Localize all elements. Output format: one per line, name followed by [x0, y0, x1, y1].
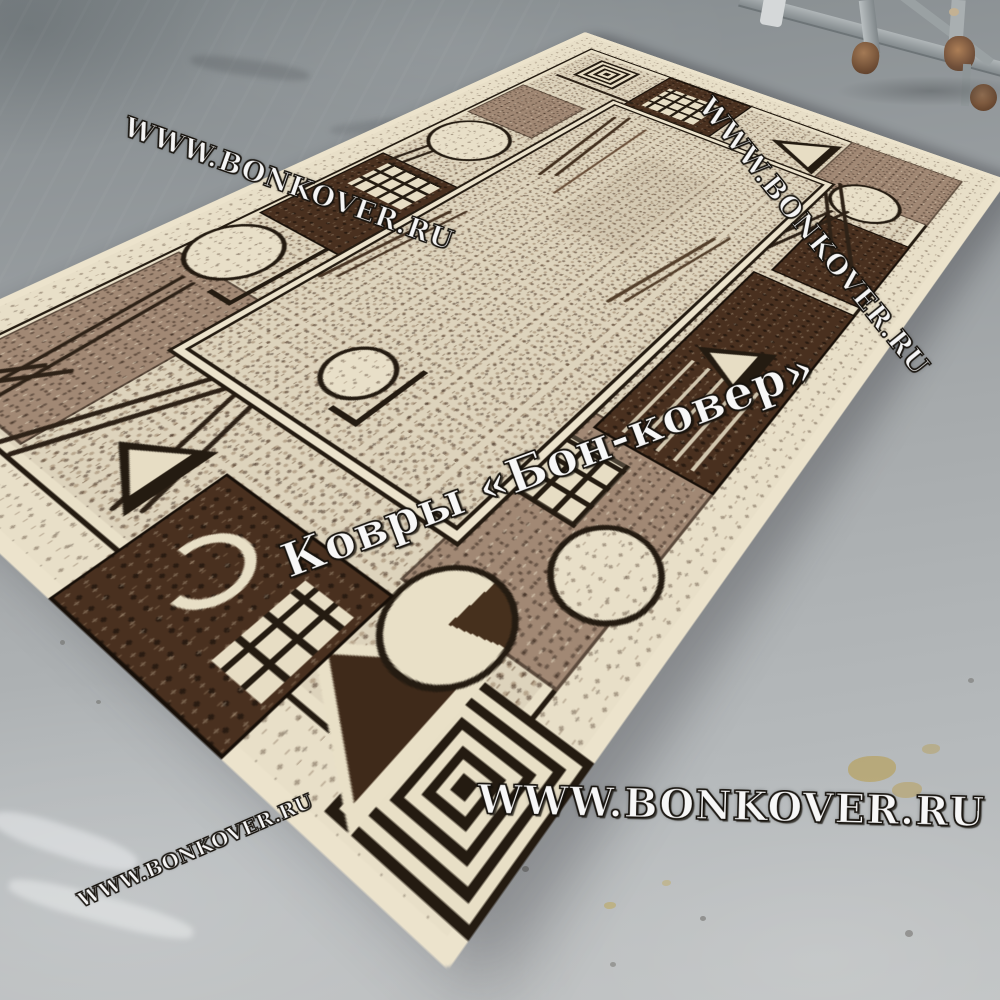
floor-stain-ochre: [604, 902, 616, 909]
floor-speck: [700, 916, 706, 921]
floor-stain-ochre: [662, 880, 671, 886]
floor-smudge: [189, 52, 310, 85]
floor-stain-ochre: [922, 744, 940, 754]
furniture-shadow: [836, 76, 1000, 106]
motif-hook: [328, 405, 361, 427]
floor-speck: [968, 678, 974, 683]
furniture-post: [759, 0, 786, 28]
paint-blob: [949, 8, 959, 16]
field-shade: [550, 155, 720, 256]
motif-circle: [300, 336, 416, 412]
floor-stain-ochre: [848, 756, 896, 782]
motif-open-ring: [153, 526, 258, 619]
floor-speck: [610, 962, 616, 967]
floor-speck: [522, 866, 529, 872]
floor-speck: [96, 700, 101, 704]
photo-scene: WWW.BONKOVER.RU WWW.BONKOVER.RU Ковры «Б…: [0, 0, 1000, 1000]
floor-scuff: [0, 804, 141, 879]
floor-speck: [60, 640, 65, 645]
floor-speck: [905, 930, 913, 937]
